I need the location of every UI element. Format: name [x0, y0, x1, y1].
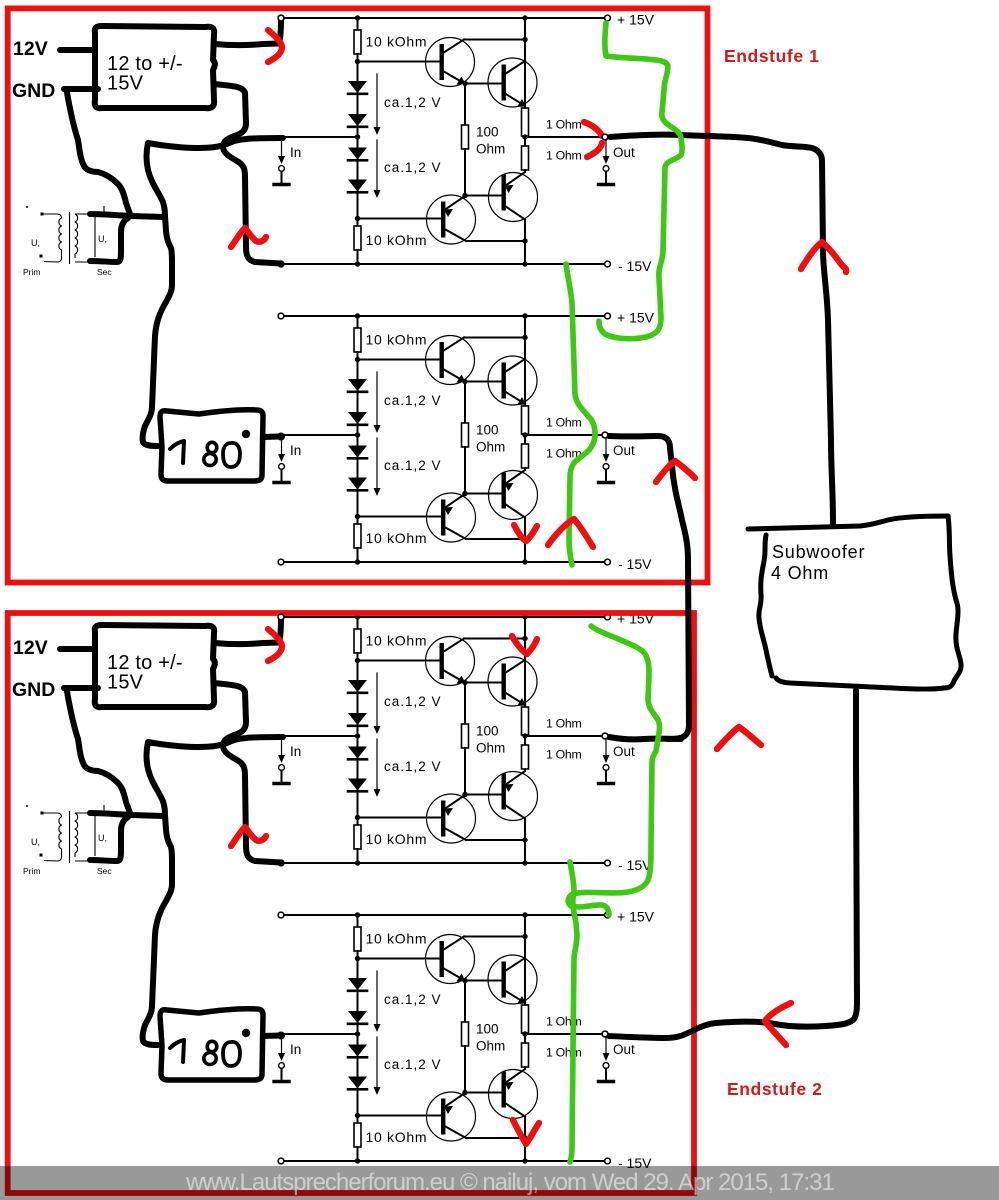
svg-text:4 Ohm: 4 Ohm	[771, 563, 829, 583]
svg-text:Endstufe 2: Endstufe 2	[727, 1079, 822, 1099]
svg-text:Endstufe 1: Endstufe 1	[724, 46, 819, 66]
svg-text:Subwoofer: Subwoofer	[772, 542, 865, 562]
svg-text:www.Lautsprecherforum.eu © nai: www.Lautsprecherforum.eu © nailuj, vom W…	[185, 1169, 834, 1196]
